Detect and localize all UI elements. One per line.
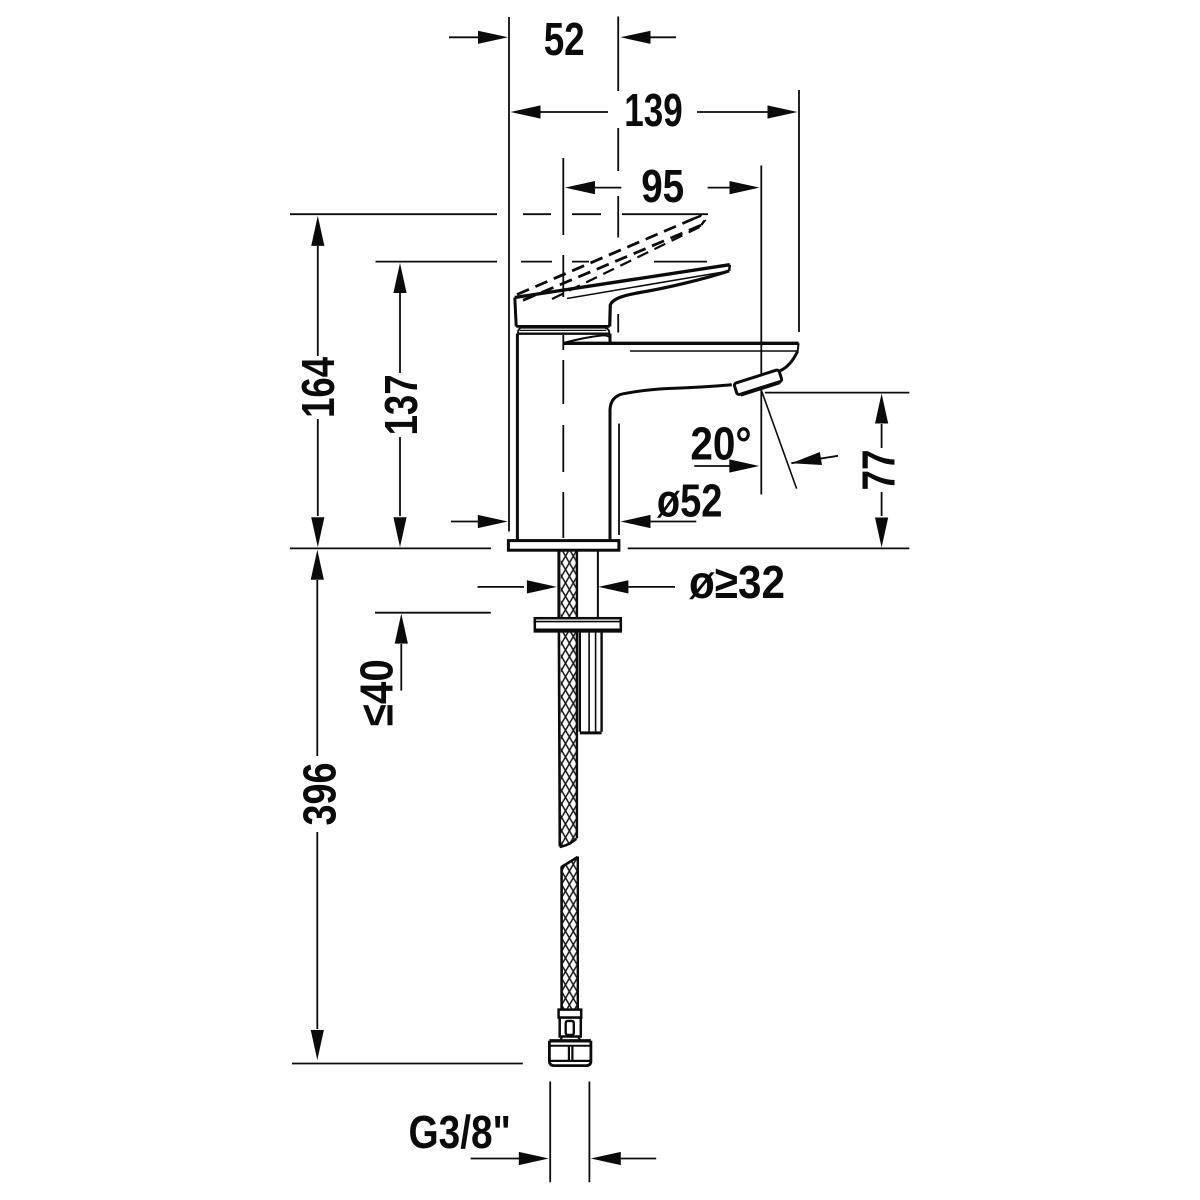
svg-text:52: 52	[544, 13, 585, 65]
svg-text:137: 137	[375, 374, 427, 435]
svg-text:396: 396	[294, 763, 346, 826]
svg-text:ø≥32: ø≥32	[689, 556, 785, 608]
svg-text:139: 139	[624, 84, 682, 136]
svg-text:95: 95	[641, 160, 684, 212]
svg-text:ø52: ø52	[657, 474, 723, 526]
svg-text:G3/8": G3/8"	[408, 1106, 511, 1158]
svg-text:20°: 20°	[690, 418, 751, 470]
svg-text:≤40: ≤40	[350, 659, 402, 726]
svg-text:164: 164	[292, 357, 344, 418]
svg-text:77: 77	[852, 450, 904, 491]
